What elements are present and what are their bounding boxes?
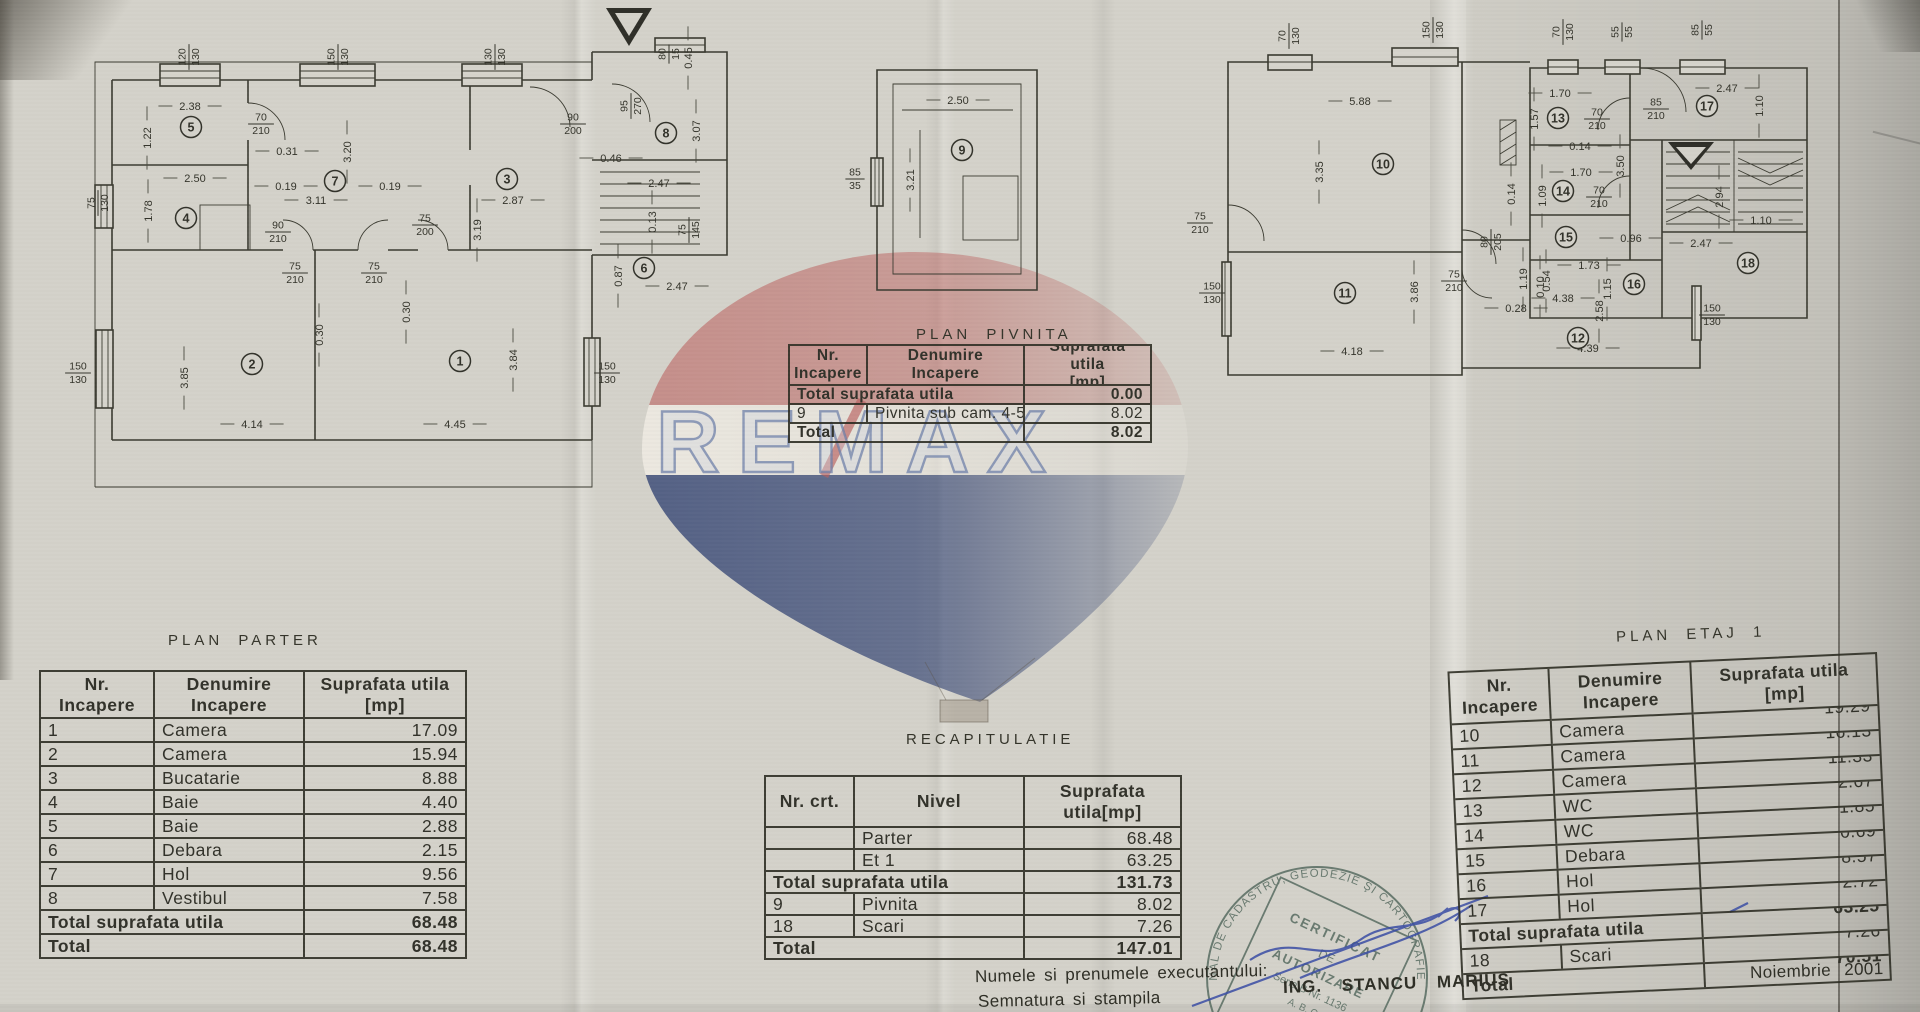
dimension-label: 2.50 bbox=[163, 173, 226, 185]
table-row: 1Camera17.09 bbox=[41, 717, 465, 741]
svg-text:3.84: 3.84 bbox=[508, 349, 520, 370]
dimension-label: 5.88 bbox=[1328, 96, 1391, 108]
svg-text:55: 55 bbox=[1623, 26, 1635, 38]
dimension-label: 1.10 bbox=[1729, 215, 1792, 227]
room-number: 7 bbox=[325, 171, 346, 192]
svg-text:4.18: 4.18 bbox=[1341, 346, 1362, 358]
dimension-label: 1.78 bbox=[143, 179, 155, 242]
scanned-cadastral-plan-page: { "titles": { "parter": "PLAN PARTER", "… bbox=[0, 0, 1920, 1012]
opening-size-label: 75210 bbox=[361, 261, 387, 287]
svg-text:0.10: 0.10 bbox=[1535, 276, 1547, 297]
table-row: 4Baie4.40 bbox=[41, 789, 465, 813]
svg-text:130: 130 bbox=[1703, 316, 1721, 328]
table-cell: Debara bbox=[155, 837, 305, 861]
opening-size-label: 70210 bbox=[248, 112, 274, 138]
dimension-label: 0.46 bbox=[579, 153, 642, 165]
table-cell: Baie bbox=[155, 789, 305, 813]
table-cell: Bucatarie bbox=[155, 765, 305, 789]
svg-text:1.10: 1.10 bbox=[1750, 215, 1771, 227]
svg-text:210: 210 bbox=[269, 233, 287, 245]
svg-text:15: 15 bbox=[1559, 231, 1573, 245]
table-cell: Hol bbox=[155, 861, 305, 885]
svg-text:130: 130 bbox=[69, 374, 87, 386]
table-cell: Total suprafata utila bbox=[766, 870, 1025, 892]
pivnita-dimension-labels: 2.503.21 bbox=[905, 95, 990, 212]
table-cell: Pivnita sub cam. 4-5 bbox=[868, 403, 1025, 422]
svg-text:150: 150 bbox=[1703, 303, 1721, 315]
opening-size-label: 90210 bbox=[265, 220, 291, 246]
svg-text:3.35: 3.35 bbox=[1314, 161, 1326, 182]
opening-size-label: 150130 bbox=[1199, 281, 1225, 307]
table-cell: Camera bbox=[155, 717, 305, 741]
svg-text:200: 200 bbox=[564, 125, 582, 137]
room-number: 6 bbox=[634, 258, 655, 279]
room-number: 8 bbox=[656, 123, 677, 144]
opening-size-label: 70210 bbox=[1584, 107, 1610, 133]
svg-text:1.10: 1.10 bbox=[1754, 95, 1766, 116]
table-cell: 8.88 bbox=[305, 765, 465, 789]
room-number: 17 bbox=[1697, 96, 1718, 117]
svg-text:70: 70 bbox=[1551, 26, 1563, 38]
dimension-label: 1.70 bbox=[1528, 88, 1591, 100]
dimension-label: 0.96 bbox=[1599, 233, 1662, 245]
table-cell: Nr. Incapere bbox=[1450, 669, 1552, 723]
table-header-row: Nr. IncapereDenumire IncapereSuprafata u… bbox=[41, 672, 465, 717]
plan-parter-drawing bbox=[95, 8, 727, 487]
svg-text:1.09: 1.09 bbox=[1537, 185, 1549, 206]
plan-pivnita-title: PLAN PIVNITA bbox=[916, 326, 1072, 343]
table-cell: 131.73 bbox=[1025, 870, 1180, 892]
dimension-label: 4.14 bbox=[220, 419, 283, 431]
svg-text:70: 70 bbox=[1591, 107, 1603, 119]
svg-text:2.47: 2.47 bbox=[648, 178, 669, 190]
svg-text:1.78: 1.78 bbox=[143, 200, 155, 221]
table-cell: Pivnita bbox=[855, 892, 1025, 914]
table-row: Total68.48 bbox=[41, 933, 465, 957]
table-cell: Nr. Incapere bbox=[41, 672, 155, 717]
table-cell bbox=[766, 826, 855, 848]
svg-text:4.45: 4.45 bbox=[444, 419, 465, 431]
svg-text:75: 75 bbox=[1194, 211, 1206, 223]
svg-text:0.30: 0.30 bbox=[314, 324, 326, 345]
table-cell: 18 bbox=[766, 914, 855, 936]
svg-text:2.94: 2.94 bbox=[1714, 186, 1726, 207]
svg-text:8: 8 bbox=[663, 127, 670, 141]
table-cell: Nr. crt. bbox=[766, 777, 855, 826]
opening-size-label: 150130 bbox=[1699, 303, 1725, 329]
svg-text:130: 130 bbox=[1434, 21, 1446, 39]
table-row: 9Pivnita sub cam. 4-58.02 bbox=[790, 403, 1150, 422]
svg-text:55: 55 bbox=[1610, 26, 1622, 38]
dimension-label: 0.87 bbox=[613, 244, 625, 307]
table-plan-etaj: Nr. IncapereDenumire IncapereSuprafata u… bbox=[1447, 652, 1891, 1000]
svg-text:1.73: 1.73 bbox=[1578, 260, 1599, 272]
dimension-label: 1.09 bbox=[1537, 164, 1549, 227]
table-row: Total147.01 bbox=[766, 936, 1180, 958]
table-cell: Vestibul bbox=[155, 885, 305, 909]
svg-text:210: 210 bbox=[252, 125, 270, 137]
svg-text:11: 11 bbox=[1338, 287, 1351, 301]
svg-text:0.30: 0.30 bbox=[401, 301, 413, 322]
svg-text:4.14: 4.14 bbox=[241, 419, 262, 431]
svg-text:210: 210 bbox=[365, 274, 383, 286]
dimension-label: 0.19 bbox=[358, 181, 421, 193]
svg-text:130: 130 bbox=[99, 194, 111, 212]
svg-text:210: 210 bbox=[1191, 224, 1209, 236]
dimension-label: 0.30 bbox=[401, 280, 413, 343]
dimension-label: 0.14 bbox=[1506, 162, 1518, 225]
svg-text:5: 5 bbox=[188, 121, 195, 135]
table-row: 9Pivnita8.02 bbox=[766, 892, 1180, 914]
table-row: Total suprafata utila0.00 bbox=[790, 384, 1150, 403]
dimension-label: 3.11 bbox=[284, 195, 347, 207]
opening-size-label: 150130 bbox=[65, 361, 91, 387]
svg-text:90: 90 bbox=[272, 220, 284, 232]
table-cell: 147.01 bbox=[1025, 936, 1180, 958]
svg-text:12: 12 bbox=[1571, 332, 1585, 346]
svg-text:1.70: 1.70 bbox=[1570, 167, 1591, 179]
dimension-label: 4.45 bbox=[423, 419, 486, 431]
table-cell: 9 bbox=[766, 892, 855, 914]
table-cell: 9.56 bbox=[305, 861, 465, 885]
svg-text:1.19: 1.19 bbox=[1518, 268, 1530, 289]
room-number: 3 bbox=[497, 169, 518, 190]
svg-text:70: 70 bbox=[255, 112, 267, 124]
table-cell: 9 bbox=[790, 403, 868, 422]
balloon-basket bbox=[940, 700, 988, 722]
table-cell: 3 bbox=[41, 765, 155, 789]
table-cell: 5 bbox=[41, 813, 155, 837]
svg-text:150: 150 bbox=[326, 48, 338, 66]
table-cell: Nivel bbox=[855, 777, 1025, 826]
room-number: 14 bbox=[1553, 181, 1574, 202]
svg-text:210: 210 bbox=[1647, 110, 1665, 122]
svg-text:2: 2 bbox=[249, 358, 256, 372]
svg-text:2.47: 2.47 bbox=[666, 281, 687, 293]
svg-text:1.70: 1.70 bbox=[1549, 88, 1570, 100]
room-number: 9 bbox=[952, 140, 973, 161]
parter-opening-labels: 1201301501301301309527080157021090210752… bbox=[65, 44, 702, 386]
dimension-label: 2.87 bbox=[481, 195, 544, 207]
table-row: Parter68.48 bbox=[766, 826, 1180, 848]
table-header-row: Nr. IncapereDenumire IncapereSuprafata u… bbox=[790, 346, 1150, 384]
room-number: 15 bbox=[1556, 227, 1577, 248]
table-cell: Total bbox=[41, 933, 305, 957]
table-row: 8Vestibul7.58 bbox=[41, 885, 465, 909]
table-cell: 8.02 bbox=[1025, 422, 1150, 441]
opening-size-label: 90200 bbox=[560, 112, 586, 138]
opening-size-label: 120130 bbox=[177, 44, 203, 70]
table-cell: Total suprafata utila bbox=[41, 909, 305, 933]
svg-text:120: 120 bbox=[177, 48, 189, 66]
svg-text:0.45: 0.45 bbox=[683, 47, 695, 68]
room-number: 11 bbox=[1335, 283, 1356, 304]
table-cell: 68.48 bbox=[305, 909, 465, 933]
table-cell: Nr. Incapere bbox=[790, 346, 868, 384]
room-number: 1 bbox=[450, 351, 471, 372]
svg-text:2.58: 2.58 bbox=[1594, 300, 1606, 321]
svg-text:3.21: 3.21 bbox=[905, 169, 917, 190]
dimension-label: 3.19 bbox=[472, 198, 484, 261]
table-cell: Suprafata utila [mp] bbox=[305, 672, 465, 717]
svg-text:210: 210 bbox=[1588, 120, 1606, 132]
dimension-label: 0.19 bbox=[254, 181, 317, 193]
room-number: 13 bbox=[1548, 108, 1569, 129]
svg-text:70: 70 bbox=[1593, 185, 1605, 197]
svg-text:145: 145 bbox=[690, 221, 702, 239]
table-cell: 2 bbox=[41, 741, 155, 765]
svg-text:90: 90 bbox=[567, 112, 579, 124]
opening-size-label: 80205 bbox=[1479, 229, 1505, 255]
svg-text:0.13: 0.13 bbox=[647, 211, 659, 232]
svg-text:3.86: 3.86 bbox=[1409, 281, 1421, 302]
dimension-label: 3.50 bbox=[1615, 134, 1627, 197]
svg-text:75: 75 bbox=[86, 197, 98, 209]
table-row: 7Hol9.56 bbox=[41, 861, 465, 885]
table-row: Total8.02 bbox=[790, 422, 1150, 441]
dimension-label: 2.50 bbox=[926, 95, 989, 107]
svg-text:75: 75 bbox=[368, 261, 380, 273]
dimension-label: 2.47 bbox=[645, 281, 708, 293]
svg-text:205: 205 bbox=[1492, 233, 1504, 251]
table-cell: Scari bbox=[855, 914, 1025, 936]
svg-text:4: 4 bbox=[183, 212, 190, 226]
table-plan-pivnita: Nr. IncapereDenumire IncapereSuprafata u… bbox=[788, 344, 1152, 443]
svg-text:4.38: 4.38 bbox=[1552, 293, 1573, 305]
table-row: 6Debara2.15 bbox=[41, 837, 465, 861]
svg-text:210: 210 bbox=[1445, 282, 1463, 294]
semnatura-label: Semnatura si stampila bbox=[978, 988, 1161, 1012]
window-symbols-etaj bbox=[1222, 48, 1725, 340]
opening-size-label: 8555 bbox=[1690, 20, 1716, 39]
pivnita-opening-labels: 8535 bbox=[845, 167, 864, 193]
svg-text:70: 70 bbox=[1277, 30, 1289, 42]
table-row: 5Baie2.88 bbox=[41, 813, 465, 837]
room-number: 18 bbox=[1738, 253, 1759, 274]
north-arrow-icon bbox=[1668, 142, 1714, 170]
dimension-label: 0.10 bbox=[1535, 255, 1547, 318]
table-cell: 68.48 bbox=[1025, 826, 1180, 848]
svg-text:2.87: 2.87 bbox=[502, 195, 523, 207]
date-label: Noiembrie 2001 bbox=[1750, 959, 1884, 983]
opening-size-label: 130130 bbox=[483, 44, 509, 70]
svg-text:150: 150 bbox=[69, 361, 87, 373]
svg-text:16: 16 bbox=[1627, 278, 1641, 292]
svg-text:130: 130 bbox=[1203, 294, 1221, 306]
svg-text:0.14: 0.14 bbox=[1506, 183, 1518, 204]
svg-text:75: 75 bbox=[419, 213, 431, 225]
svg-text:150: 150 bbox=[1203, 281, 1221, 293]
opening-size-label: 85210 bbox=[1643, 97, 1669, 123]
table-cell: Et 1 bbox=[855, 848, 1025, 870]
svg-text:75: 75 bbox=[677, 224, 689, 236]
dimension-label: 3.07 bbox=[691, 99, 703, 162]
table-cell: 8.02 bbox=[1025, 892, 1180, 914]
room-number: 5 bbox=[181, 117, 202, 138]
svg-text:13: 13 bbox=[1551, 112, 1565, 126]
table-cell: 8.02 bbox=[1025, 403, 1150, 422]
svg-text:150: 150 bbox=[1421, 21, 1433, 39]
table-cell: 1 bbox=[41, 717, 155, 741]
table-cell: Denumire Incapere bbox=[868, 346, 1025, 384]
svg-text:150: 150 bbox=[598, 361, 616, 373]
table-cell: Baie bbox=[155, 813, 305, 837]
table-cell: 8 bbox=[41, 885, 155, 909]
opening-size-label: 70130 bbox=[1551, 19, 1577, 45]
opening-size-label: 150130 bbox=[1421, 17, 1447, 43]
table-cell: Total bbox=[766, 936, 1025, 958]
table-plan-parter: Nr. IncapereDenumire IncapereSuprafata u… bbox=[39, 670, 467, 959]
room-number: 12 bbox=[1568, 328, 1589, 349]
dimension-label: 1.73 bbox=[1557, 260, 1620, 272]
dimension-label: 0.31 bbox=[255, 146, 318, 158]
svg-text:0.46: 0.46 bbox=[600, 153, 621, 165]
svg-text:0.96: 0.96 bbox=[1620, 233, 1641, 245]
dimension-label: 0.14 bbox=[1548, 141, 1611, 153]
table-cell: 6 bbox=[41, 837, 155, 861]
table-cell: Total bbox=[790, 422, 1025, 441]
room-number: 4 bbox=[176, 208, 197, 229]
svg-text:2.50: 2.50 bbox=[947, 95, 968, 107]
svg-text:2.38: 2.38 bbox=[179, 101, 200, 113]
svg-text:55: 55 bbox=[1703, 24, 1715, 36]
svg-text:6: 6 bbox=[641, 262, 648, 276]
svg-text:130: 130 bbox=[339, 48, 351, 66]
svg-text:130: 130 bbox=[483, 48, 495, 66]
table-cell: 4 bbox=[41, 789, 155, 813]
svg-text:1.22: 1.22 bbox=[142, 127, 154, 148]
svg-text:0.31: 0.31 bbox=[276, 146, 297, 158]
svg-text:85: 85 bbox=[1650, 97, 1662, 109]
dimension-label: 3.21 bbox=[905, 148, 917, 211]
svg-text:75: 75 bbox=[289, 261, 301, 273]
opening-size-label: 75210 bbox=[1187, 211, 1213, 237]
svg-text:80: 80 bbox=[657, 48, 669, 60]
table-cell: Suprafata utila[mp] bbox=[1025, 777, 1180, 826]
opening-size-label: 75210 bbox=[1441, 269, 1467, 295]
table-row: Total suprafata utila131.73 bbox=[766, 870, 1180, 892]
room-number: 16 bbox=[1624, 274, 1645, 295]
pivnita-room-numbers: 9 bbox=[952, 140, 973, 161]
opening-size-label: 5555 bbox=[1610, 22, 1636, 41]
svg-text:80: 80 bbox=[1479, 236, 1491, 248]
svg-text:5.88: 5.88 bbox=[1349, 96, 1370, 108]
table-cell: 2.15 bbox=[305, 837, 465, 861]
table-cell: 15.94 bbox=[305, 741, 465, 765]
svg-text:17: 17 bbox=[1700, 100, 1714, 114]
table-cell bbox=[766, 848, 855, 870]
plan-parter-title: PLAN PARTER bbox=[168, 632, 322, 649]
dimension-label: 4.18 bbox=[1320, 346, 1383, 358]
table-cell: 2.88 bbox=[305, 813, 465, 837]
recapitulatie-title: RECAPITULATIE bbox=[906, 731, 1074, 748]
svg-text:2.47: 2.47 bbox=[1716, 83, 1737, 95]
svg-text:3.11: 3.11 bbox=[306, 195, 327, 207]
svg-text:3.19: 3.19 bbox=[472, 219, 484, 240]
table-row: Et 163.25 bbox=[766, 848, 1180, 870]
svg-text:35: 35 bbox=[849, 180, 861, 192]
svg-text:1: 1 bbox=[457, 355, 464, 369]
svg-text:0.87: 0.87 bbox=[613, 265, 625, 286]
opening-size-label: 150130 bbox=[594, 361, 620, 387]
dimension-label: 0.45 bbox=[683, 26, 695, 89]
svg-text:95: 95 bbox=[619, 100, 631, 112]
svg-text:3: 3 bbox=[504, 173, 511, 187]
room-number: 10 bbox=[1373, 154, 1394, 175]
svg-text:0.28: 0.28 bbox=[1505, 303, 1526, 315]
dimension-label: 3.86 bbox=[1409, 260, 1421, 323]
opening-size-label: 70210 bbox=[1586, 185, 1612, 211]
room-number: 2 bbox=[242, 354, 263, 375]
north-arrow-icon bbox=[606, 8, 652, 46]
opening-size-label: 75145 bbox=[677, 217, 703, 243]
table-cell: Parter bbox=[855, 826, 1025, 848]
dimension-label: 3.84 bbox=[508, 328, 520, 391]
table-cell: Denumire Incapere bbox=[1549, 662, 1693, 718]
svg-text:2.50: 2.50 bbox=[184, 173, 205, 185]
svg-text:3.07: 3.07 bbox=[691, 120, 703, 141]
table-cell: 7 bbox=[41, 861, 155, 885]
table-cell: 17.09 bbox=[305, 717, 465, 741]
dimension-label: 3.35 bbox=[1314, 140, 1326, 203]
table-recapitulatie: Nr. crt.NivelSuprafata utila[mp]Parter68… bbox=[764, 775, 1182, 960]
dimension-label: 1.70 bbox=[1549, 167, 1612, 179]
svg-text:14: 14 bbox=[1556, 185, 1570, 199]
table-cell: 7.26 bbox=[1025, 914, 1180, 936]
svg-text:7: 7 bbox=[332, 175, 339, 189]
opening-size-label: 8535 bbox=[845, 167, 864, 193]
table-row: 2Camera15.94 bbox=[41, 741, 465, 765]
svg-text:2.47: 2.47 bbox=[1690, 238, 1711, 250]
svg-text:210: 210 bbox=[1590, 198, 1608, 210]
dimension-label: 1.10 bbox=[1754, 74, 1766, 137]
svg-text:0.19: 0.19 bbox=[275, 181, 296, 193]
table-cell: Total suprafata utila bbox=[790, 384, 1025, 403]
svg-text:3.20: 3.20 bbox=[342, 141, 354, 162]
svg-text:0.19: 0.19 bbox=[379, 181, 400, 193]
svg-text:130: 130 bbox=[1564, 23, 1576, 41]
dimension-label: 1.22 bbox=[142, 106, 154, 169]
svg-text:75: 75 bbox=[1448, 269, 1460, 281]
dimension-label: 2.47 bbox=[1695, 83, 1758, 95]
svg-text:130: 130 bbox=[598, 374, 616, 386]
svg-text:130: 130 bbox=[1290, 27, 1302, 45]
svg-text:130: 130 bbox=[190, 48, 202, 66]
table-cell: Camera bbox=[155, 741, 305, 765]
svg-text:210: 210 bbox=[286, 274, 304, 286]
svg-text:85: 85 bbox=[849, 167, 861, 179]
table-cell: 0.00 bbox=[1025, 384, 1150, 403]
dimension-label: 2.47 bbox=[1669, 238, 1732, 250]
svg-text:3.50: 3.50 bbox=[1615, 155, 1627, 176]
svg-text:1.57: 1.57 bbox=[1529, 108, 1541, 129]
dimension-label: 3.85 bbox=[179, 346, 191, 409]
table-header-row: Nr. crt.NivelSuprafata utila[mp] bbox=[766, 777, 1180, 826]
table-cell: 4.40 bbox=[305, 789, 465, 813]
opening-size-label: 70130 bbox=[1277, 23, 1303, 49]
dimension-label: 2.38 bbox=[158, 101, 221, 113]
svg-text:15: 15 bbox=[670, 48, 682, 60]
svg-text:0.14: 0.14 bbox=[1569, 141, 1590, 153]
table-cell: 68.48 bbox=[305, 933, 465, 957]
table-cell: Denumire Incapere bbox=[155, 672, 305, 717]
opening-size-label: 150130 bbox=[326, 44, 352, 70]
svg-text:18: 18 bbox=[1741, 257, 1755, 271]
parter-fixture-box bbox=[200, 205, 250, 250]
table-cell: Suprafata utila [mp] bbox=[1025, 346, 1150, 384]
svg-text:10: 10 bbox=[1376, 158, 1390, 172]
table-row: Total suprafata utila68.48 bbox=[41, 909, 465, 933]
